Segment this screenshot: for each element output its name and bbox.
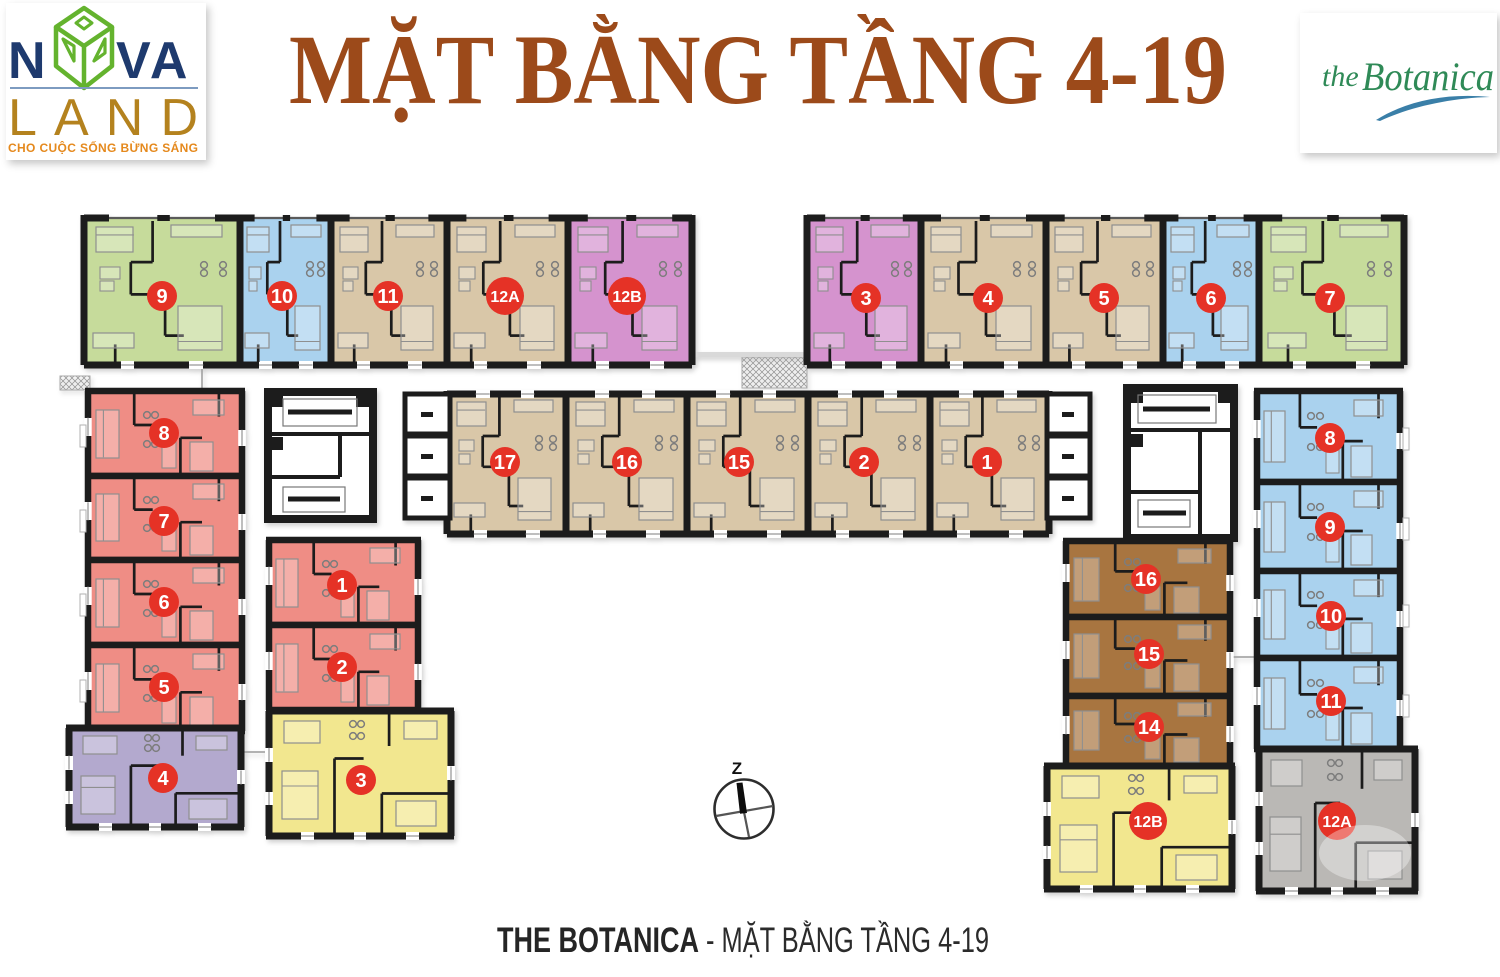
svg-text:12B: 12B bbox=[1133, 814, 1162, 831]
svg-text:11: 11 bbox=[377, 286, 398, 308]
svg-text:3: 3 bbox=[860, 288, 871, 310]
svg-text:4: 4 bbox=[157, 768, 169, 790]
svg-text:7: 7 bbox=[158, 511, 169, 533]
svg-text:Z: Z bbox=[732, 759, 742, 778]
svg-text:CHO CUỘC SỐNG BỪNG SÁNG: CHO CUỘC SỐNG BỪNG SÁNG bbox=[8, 140, 198, 155]
svg-text:5: 5 bbox=[158, 677, 169, 699]
svg-text:10: 10 bbox=[271, 286, 293, 308]
svg-text:9: 9 bbox=[1324, 517, 1335, 539]
svg-text:the: the bbox=[1322, 60, 1359, 93]
svg-text:THE BOTANICA: THE BOTANICA bbox=[497, 921, 699, 960]
svg-text:6: 6 bbox=[1205, 288, 1216, 310]
svg-text:9: 9 bbox=[156, 286, 167, 308]
svg-text:15: 15 bbox=[1138, 644, 1160, 666]
svg-text:10: 10 bbox=[1320, 606, 1342, 628]
svg-text:2: 2 bbox=[858, 452, 869, 474]
svg-text:8: 8 bbox=[1324, 428, 1335, 450]
svg-text:16: 16 bbox=[1135, 569, 1157, 591]
svg-text:12B: 12B bbox=[612, 289, 641, 306]
svg-text:16: 16 bbox=[616, 452, 638, 474]
svg-text:Botanica: Botanica bbox=[1362, 54, 1494, 99]
svg-text:1: 1 bbox=[981, 452, 992, 474]
svg-text:6: 6 bbox=[158, 592, 169, 614]
svg-text:7: 7 bbox=[1324, 288, 1335, 310]
svg-text:4: 4 bbox=[982, 288, 994, 310]
svg-text:14: 14 bbox=[1138, 717, 1161, 739]
svg-text:VA: VA bbox=[116, 32, 190, 90]
svg-text:2: 2 bbox=[336, 657, 347, 679]
svg-text:15: 15 bbox=[728, 452, 750, 474]
svg-text:1: 1 bbox=[336, 575, 347, 597]
svg-text:- MẶT BẰNG TẦNG 4-19: - MẶT BẰNG TẦNG 4-19 bbox=[706, 920, 989, 960]
svg-text:12A: 12A bbox=[490, 289, 520, 306]
svg-text:11: 11 bbox=[1320, 691, 1341, 713]
svg-text:17: 17 bbox=[494, 452, 516, 474]
svg-text:5: 5 bbox=[1098, 288, 1109, 310]
svg-text:N: N bbox=[8, 32, 46, 90]
svg-text:MẶT BẰNG TẦNG 4-19: MẶT BẰNG TẦNG 4-19 bbox=[289, 14, 1227, 125]
svg-text:8: 8 bbox=[158, 423, 169, 445]
svg-text:3: 3 bbox=[355, 770, 366, 792]
